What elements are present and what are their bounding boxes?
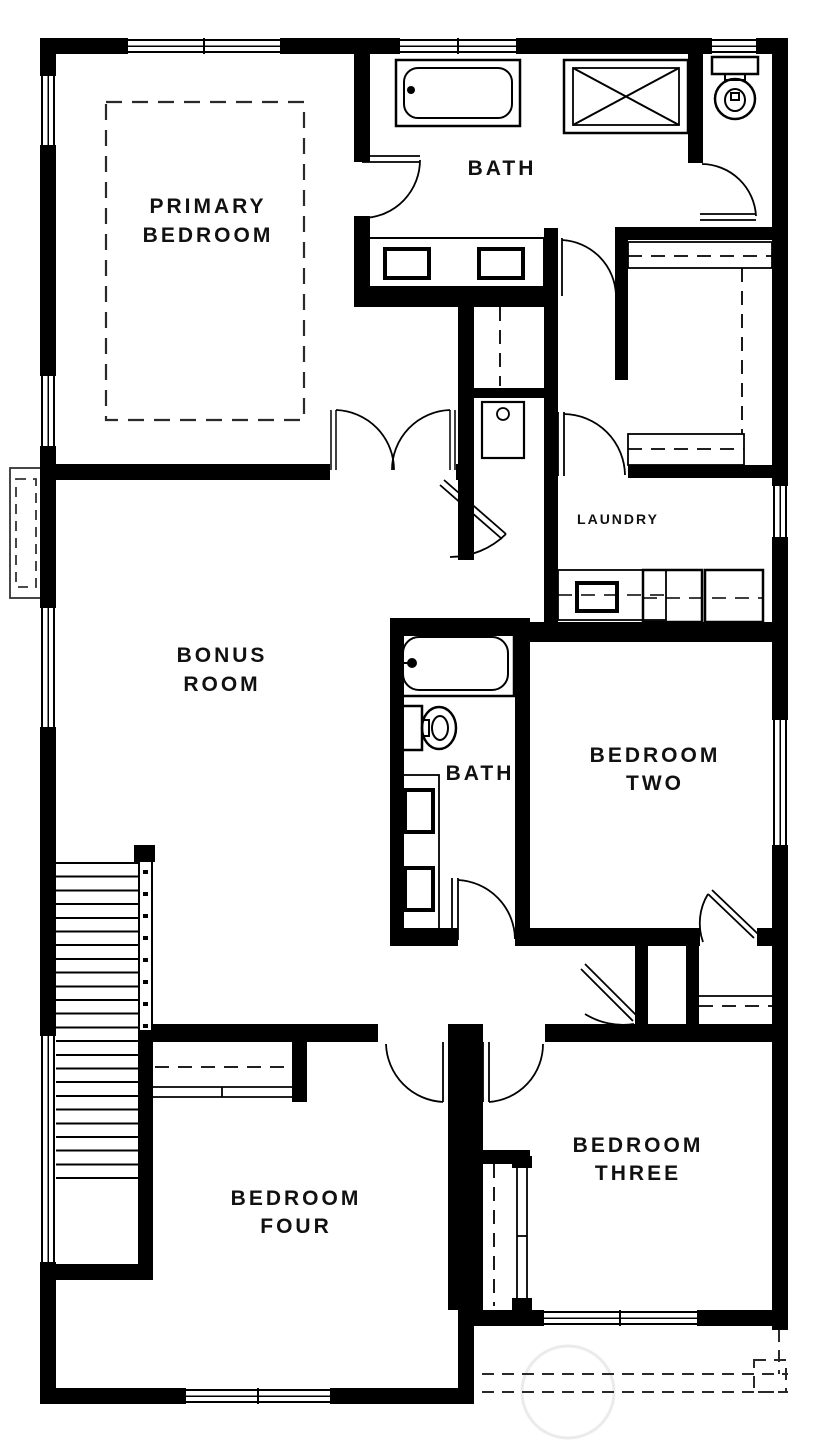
floor-plan: PRIMARY BEDROOM BATH LAUNDRY BONUS ROOM …	[0, 0, 836, 1440]
bathtub-middle-icon	[396, 630, 514, 696]
wall-hall-south-east	[545, 1024, 772, 1042]
wall-bath-middle-east	[515, 632, 530, 943]
closet-bedroom-four	[153, 1067, 292, 1097]
shower-icon	[564, 60, 688, 133]
wall-closet-south	[628, 465, 772, 478]
wall-primary-east-upper	[354, 54, 370, 162]
window-bedroom-four-bottom	[186, 1388, 330, 1404]
toilet-middle-icon	[398, 706, 456, 750]
door-laundry	[558, 412, 625, 476]
laundry-counter-icon	[558, 570, 666, 620]
wall-bath-top-south	[354, 288, 558, 307]
toilet-icon	[712, 57, 758, 119]
window-laundry-right	[772, 486, 788, 537]
door-hall-closet	[581, 964, 637, 1025]
roof-below-outline	[462, 1330, 788, 1392]
room-labels: PRIMARY BEDROOM BATH LAUNDRY BONUS ROOM …	[143, 157, 721, 1238]
window-bonus-left	[40, 608, 56, 727]
window-primary-left-1	[40, 76, 56, 145]
label-bedroom-three-1: BEDROOM	[573, 1134, 704, 1157]
window-primary-left-2	[40, 376, 56, 446]
bed-outline	[106, 102, 304, 420]
window-bedroom-three-bottom	[544, 1310, 697, 1326]
label-bedroom-four-2: FOUR	[260, 1215, 332, 1238]
window-stair-left	[40, 1036, 56, 1262]
wall-stair-landing-south	[40, 1264, 153, 1280]
wall-bedroom-four-closet-east	[292, 1042, 307, 1102]
closet-bedroom-two	[699, 996, 772, 1006]
door-bedroom-four	[386, 1042, 449, 1102]
label-laundry: LAUNDRY	[577, 511, 659, 527]
door-primary-to-bath	[362, 156, 420, 218]
vanity-top-icon	[368, 238, 544, 287]
stairs	[56, 862, 138, 1191]
utility-sink-icon	[482, 307, 524, 458]
wall-hall-north-2	[515, 928, 700, 946]
window-primary-top	[128, 38, 280, 54]
floor-plan-drawing: PRIMARY BEDROOM BATH LAUNDRY BONUS ROOM …	[0, 0, 836, 1440]
window-bath-top	[400, 38, 516, 54]
wall-wc-south	[615, 227, 772, 240]
wall-stair-east	[138, 1030, 153, 1264]
label-bonus-room-2: ROOM	[183, 673, 260, 696]
label-bedroom-two-2: TWO	[626, 772, 684, 795]
label-bath-top: BATH	[468, 157, 537, 180]
closet-shelves-top-right	[628, 242, 772, 465]
wall-hall-north-3	[757, 928, 772, 946]
window-wc-top	[712, 38, 756, 54]
wall-sinkroom-west	[458, 300, 474, 560]
wall-bath-middle-north	[390, 618, 530, 636]
window-bedroom-two-right	[772, 720, 788, 845]
door-primary-double	[331, 410, 455, 470]
door-wc	[700, 164, 756, 220]
door-bath-vestibule	[556, 238, 616, 296]
wall-hall-closet-stub-2	[686, 946, 699, 1026]
wall-exterior-right	[772, 38, 788, 1330]
wall-closet-west	[615, 240, 628, 380]
wall-step	[458, 1310, 474, 1404]
label-bedroom-two-1: BEDROOM	[590, 744, 721, 767]
washer-icon	[643, 570, 702, 622]
wall-bedroom-three-closet-west	[448, 1024, 483, 1310]
label-bath-middle: BATH	[446, 762, 515, 785]
label-primary-bedroom-2: BEDROOM	[143, 224, 274, 247]
label-primary-bedroom-1: PRIMARY	[149, 195, 266, 218]
chimney	[10, 468, 42, 598]
wall-primary-south	[56, 464, 330, 480]
wall-hall-south-west	[153, 1024, 378, 1042]
label-bedroom-four-1: BEDROOM	[231, 1187, 362, 1210]
wall-hall-closet-stub-1	[635, 946, 648, 1026]
label-bedroom-three-2: THREE	[595, 1162, 681, 1185]
stair-railing	[138, 848, 153, 1030]
closet-bedroom-three	[494, 1156, 532, 1310]
label-bonus-room-1: BONUS	[177, 644, 268, 667]
door-bedroom-two	[700, 890, 758, 942]
wall-shower-wc-divider	[688, 54, 703, 163]
door-bedroom-three	[483, 1042, 543, 1102]
wall-laundry-south	[530, 622, 772, 642]
wall-sinkroom-divider	[474, 388, 544, 398]
wall-primary-south-stub	[456, 464, 474, 480]
bathtub-icon	[396, 60, 520, 126]
door-bath-middle	[452, 878, 515, 940]
